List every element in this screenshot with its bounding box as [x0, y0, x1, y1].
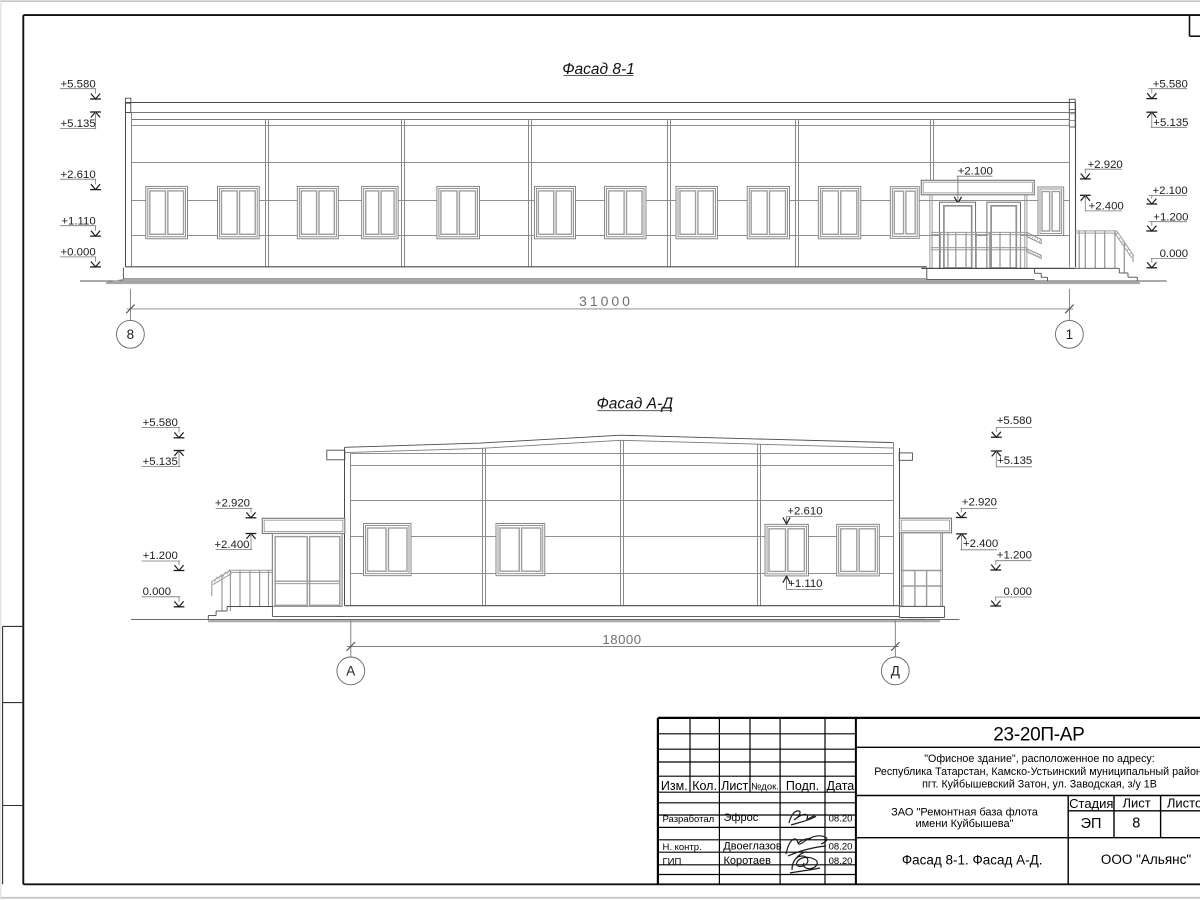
svg-text:31000: 31000 [579, 293, 633, 309]
svg-text:ГИП: ГИП [663, 856, 682, 867]
svg-text:08.20: 08.20 [829, 856, 853, 867]
svg-text:+1.200: +1.200 [143, 550, 178, 562]
svg-text:Республика Татарстан, Камско-У: Республика Татарстан, Камско-Устьинский … [874, 766, 1200, 778]
svg-text:0.000: 0.000 [143, 586, 172, 598]
svg-text:8: 8 [127, 327, 135, 342]
svg-text:08.20: 08.20 [829, 813, 853, 824]
svg-text:08.20: 08.20 [829, 842, 853, 853]
svg-text:А: А [346, 664, 355, 679]
svg-text:Фасад 8-1. Фасад А-Д.: Фасад 8-1. Фасад А-Д. [902, 853, 1043, 868]
svg-text:Подп.: Подп. [786, 779, 819, 793]
svg-text:+2.610: +2.610 [787, 505, 822, 517]
svg-text:имени Куйбышева": имени Куйбышева" [915, 818, 1013, 830]
svg-text:ЭП: ЭП [1081, 816, 1102, 832]
svg-text:ООО "Альянс": ООО "Альянс" [1101, 852, 1191, 867]
svg-text:Эфрос: Эфрос [724, 812, 759, 824]
svg-text:+2.920: +2.920 [962, 497, 997, 509]
svg-text:+2.400: +2.400 [963, 538, 998, 550]
svg-text:1: 1 [1066, 327, 1074, 342]
svg-text:+5.580: +5.580 [997, 415, 1032, 427]
svg-text:"Офисное здание", расположенно: "Офисное здание", расположенное по адрес… [924, 753, 1154, 765]
svg-text:+2.400: +2.400 [214, 539, 249, 551]
svg-text:18000: 18000 [602, 632, 641, 647]
svg-text:+5.135: +5.135 [143, 456, 178, 468]
svg-text:Изм.: Изм. [661, 779, 688, 793]
svg-text:+1.200: +1.200 [997, 550, 1032, 562]
svg-text:23-20П-АР: 23-20П-АР [993, 724, 1084, 745]
svg-text:Разработал: Разработал [663, 814, 715, 825]
svg-text:Листов: Листов [1167, 795, 1200, 810]
svg-text:Стадия: Стадия [1069, 796, 1113, 811]
svg-text:Н. контр.: Н. контр. [663, 842, 702, 853]
svg-text:8: 8 [1132, 816, 1140, 832]
svg-text:Фасад А-Д: Фасад А-Д [596, 395, 673, 412]
svg-text:+1.110: +1.110 [788, 578, 822, 590]
svg-text:Лист: Лист [1122, 795, 1150, 810]
svg-text:Д: Д [891, 664, 900, 679]
svg-text:Лист: Лист [721, 779, 748, 793]
svg-text:+2.920: +2.920 [215, 498, 250, 510]
svg-text:№док.: №док. [751, 781, 779, 792]
svg-text:Двоеглазов: Двоеглазов [723, 841, 782, 853]
svg-text:Кол.: Кол. [692, 779, 717, 793]
svg-text:пгт. Куйбышевский Затон, ул. З: пгт. Куйбышевский Затон, ул. Заводская, … [922, 778, 1157, 790]
svg-text:Коротаев: Коротаев [724, 855, 772, 867]
svg-text:ЗАО "Ремонтная база флота: ЗАО "Ремонтная база флота [891, 806, 1039, 818]
svg-text:0.000: 0.000 [1004, 586, 1033, 598]
svg-text:+5.135: +5.135 [997, 455, 1032, 467]
svg-text:Дата: Дата [827, 779, 855, 793]
